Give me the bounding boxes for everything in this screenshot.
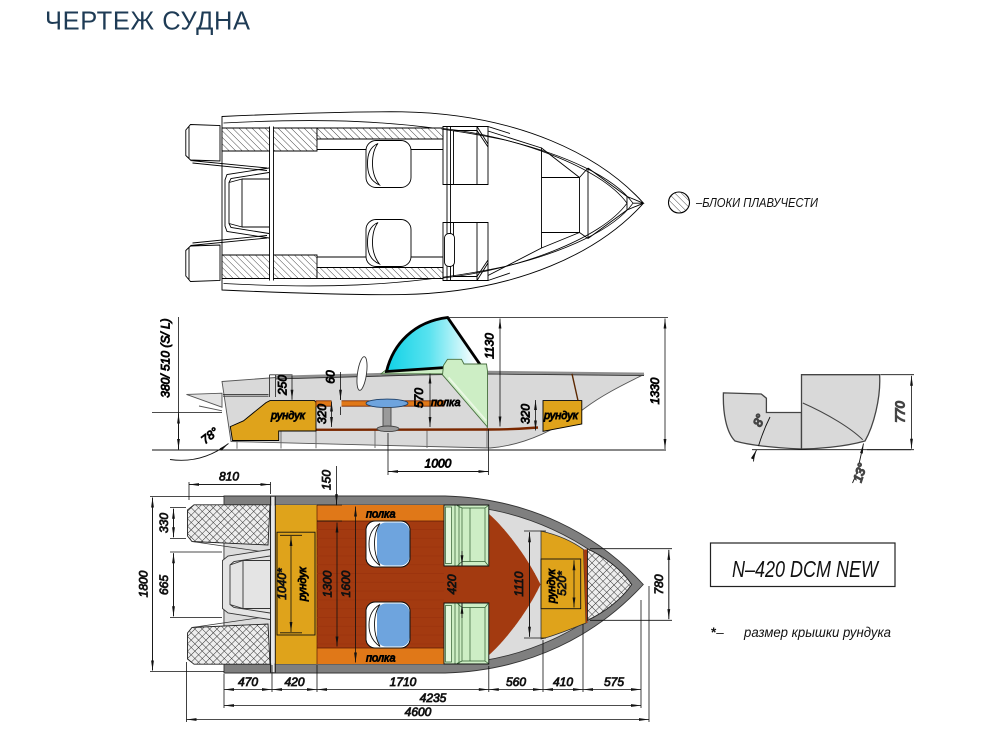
svg-text:520*: 520* <box>555 571 569 596</box>
svg-text:665: 665 <box>157 575 171 595</box>
svg-text:полка: полка <box>431 397 460 409</box>
svg-text:размер крышки рундука: размер крышки рундука <box>743 625 891 640</box>
svg-text:410: 410 <box>553 675 573 689</box>
svg-text:1130: 1130 <box>483 333 497 359</box>
svg-text:4235: 4235 <box>420 691 447 705</box>
svg-text:250: 250 <box>276 375 290 396</box>
svg-text:150: 150 <box>320 470 334 490</box>
svg-text:570: 570 <box>412 388 426 408</box>
svg-text:полка: полка <box>366 653 395 665</box>
svg-text:78°: 78° <box>198 424 221 446</box>
svg-text:1330: 1330 <box>648 377 662 404</box>
svg-text:–БЛОКИ ПЛАВУЧЕСТИ: –БЛОКИ ПЛАВУЧЕСТИ <box>695 196 818 210</box>
svg-text:1000: 1000 <box>425 457 452 471</box>
svg-text:1300: 1300 <box>321 570 335 597</box>
svg-text:1600: 1600 <box>339 570 353 597</box>
svg-text:420: 420 <box>284 675 304 689</box>
svg-text:1800: 1800 <box>137 570 151 597</box>
svg-text:рундук: рундук <box>270 410 306 422</box>
svg-text:380/ 510 (S/ L): 380/ 510 (S/ L) <box>159 318 173 397</box>
svg-text:N–420 DCM NEW: N–420 DCM NEW <box>732 556 880 582</box>
svg-text:13°: 13° <box>851 462 870 484</box>
svg-text:60: 60 <box>324 370 338 384</box>
svg-text:810: 810 <box>219 470 239 484</box>
svg-text:полка: полка <box>366 509 395 521</box>
svg-text:330: 330 <box>157 513 171 533</box>
svg-text:420: 420 <box>445 574 459 594</box>
svg-text:4600: 4600 <box>405 705 432 719</box>
svg-text:рундук: рундук <box>297 566 309 602</box>
svg-text:1710: 1710 <box>390 675 417 689</box>
svg-text:1110: 1110 <box>512 571 526 596</box>
svg-text:470: 470 <box>238 675 258 689</box>
svg-text:рундук: рундук <box>543 410 579 422</box>
svg-text:320: 320 <box>315 404 329 424</box>
svg-text:770: 770 <box>893 400 908 422</box>
svg-text:780: 780 <box>652 574 666 594</box>
svg-text:1040*: 1040* <box>275 568 289 600</box>
svg-text:560: 560 <box>506 675 526 689</box>
svg-text:*–: *– <box>711 625 724 640</box>
svg-text:ЧЕРТЕЖ СУДНА: ЧЕРТЕЖ СУДНА <box>45 8 251 36</box>
svg-text:320: 320 <box>519 404 533 424</box>
svg-text:575: 575 <box>604 675 624 689</box>
